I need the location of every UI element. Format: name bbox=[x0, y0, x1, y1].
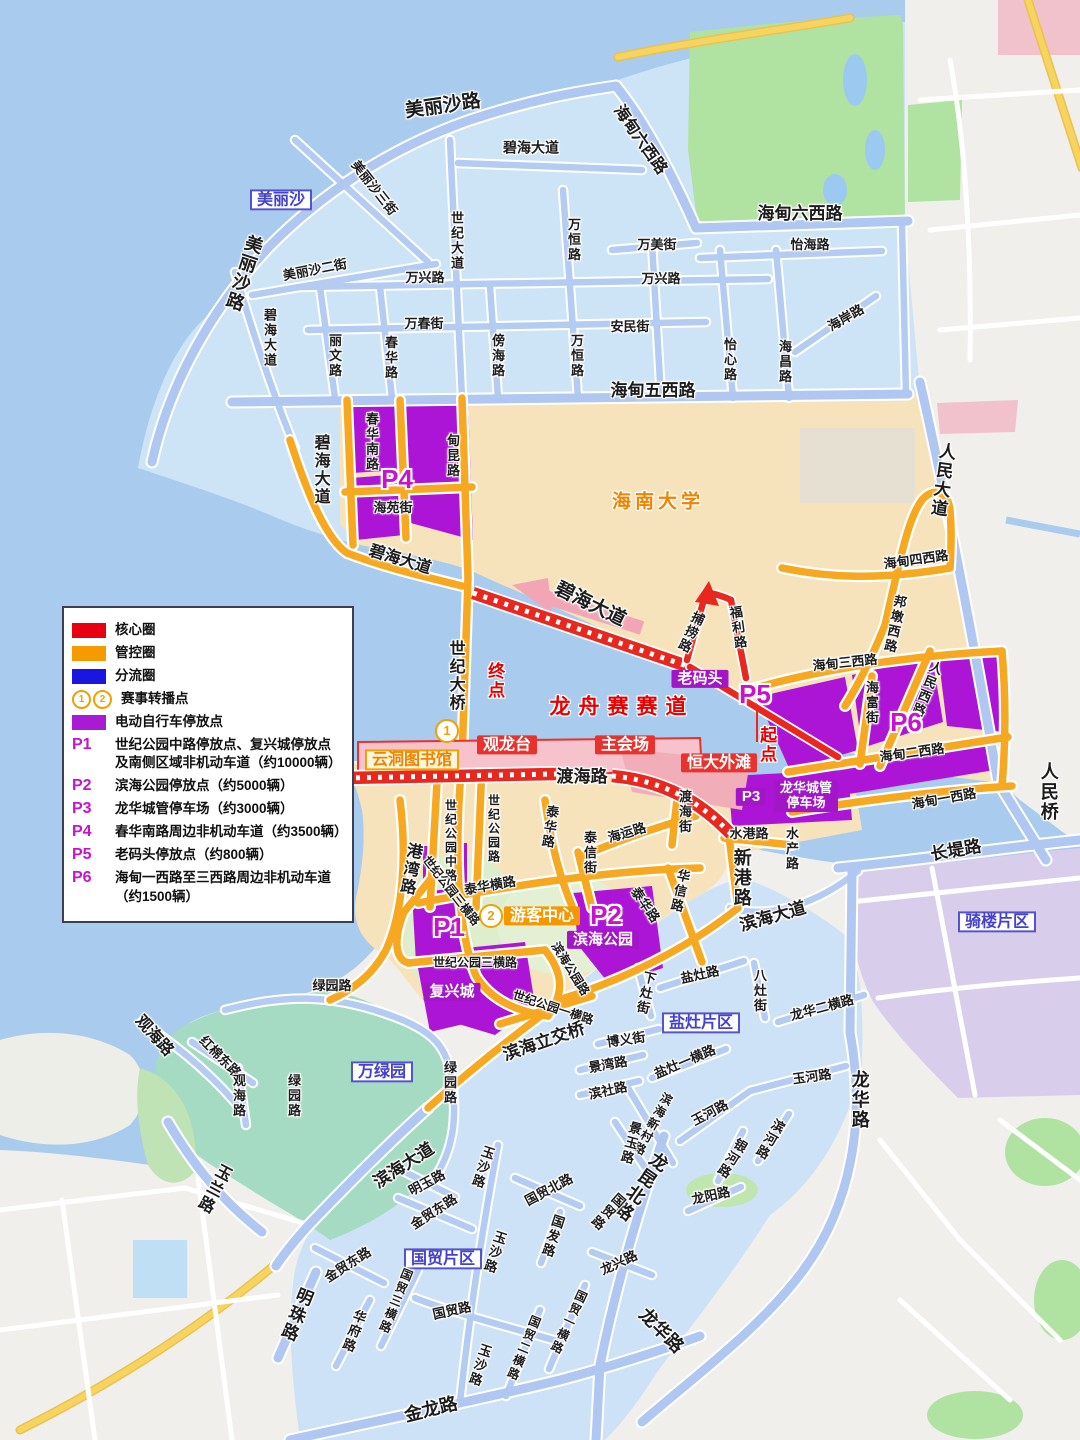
legend-broadcast-icons: 12 bbox=[72, 690, 112, 709]
legend-item: 分流圈 bbox=[72, 667, 344, 686]
road-label-major: 龙华路 bbox=[849, 1070, 868, 1130]
road-label: 万春街 bbox=[404, 317, 443, 331]
legend-parking-code: P5 bbox=[72, 846, 106, 864]
legend-parking-code: P3 bbox=[72, 800, 106, 818]
legend-parking-code: P2 bbox=[72, 777, 106, 795]
road-label: 怡心路 bbox=[722, 338, 736, 383]
road-label: 春华南路 bbox=[364, 412, 378, 472]
poi-label: 滨海公园 bbox=[567, 931, 639, 949]
legend-label: 电动自行车停放点 bbox=[115, 713, 223, 732]
map[interactable]: 核心圈管控圈分流圈12赛事转播点电动自行车停放点P1世纪公园中路停放点、复兴城停… bbox=[0, 0, 1080, 1440]
road-label: 世纪公园中路 bbox=[444, 799, 457, 883]
legend-label: 核心圈 bbox=[115, 621, 156, 640]
venue-label: 主会场 bbox=[595, 735, 655, 754]
road-label: 世纪公园三横路 bbox=[433, 957, 517, 970]
visitor-center-label: 游客中心 bbox=[504, 906, 580, 925]
legend: 核心圈管控圈分流圈12赛事转播点电动自行车停放点P1世纪公园中路停放点、复兴城停… bbox=[62, 606, 354, 923]
road-label: 绿园路 bbox=[312, 979, 351, 993]
road-label-major: 渡海路 bbox=[557, 768, 608, 786]
district-label: 美丽沙 bbox=[250, 189, 312, 210]
legend-item: 管控圈 bbox=[72, 644, 344, 663]
road-label: 碧海大道 bbox=[262, 308, 276, 368]
parking-marker-p5: P5 bbox=[739, 680, 771, 708]
course-point-label: 终点 bbox=[485, 662, 503, 700]
legend-parking-code: P6 bbox=[72, 869, 106, 887]
parking-marker-p2: P2 bbox=[590, 901, 622, 929]
district-label: 盐灶片区 bbox=[662, 1012, 740, 1033]
district-label: 骑楼片区 bbox=[958, 911, 1036, 932]
venue-label: 观龙台 bbox=[477, 735, 537, 754]
road-label: 万兴路 bbox=[405, 271, 444, 285]
road-label: 观海路 bbox=[231, 1074, 245, 1119]
legend-label: 世纪公园中路停放点、复兴城停放点及南侧区域非机动车道（约10000辆） bbox=[115, 736, 342, 774]
road-label-major: 世纪大桥 bbox=[446, 640, 463, 712]
legend-parking-code: P1 bbox=[72, 736, 106, 754]
road-label-major: 碧海大道 bbox=[311, 434, 328, 506]
parking-marker-p6: P6 bbox=[890, 708, 922, 736]
university-label: 海南大学 bbox=[612, 493, 704, 514]
legend-item: P5老码头停放点（约800辆） bbox=[72, 846, 344, 865]
road-label: 甸昆路 bbox=[445, 434, 459, 479]
legend-label: 管控圈 bbox=[115, 644, 156, 663]
legend-swatch bbox=[72, 646, 106, 661]
road-label: 万兴路 bbox=[641, 272, 680, 286]
district-label: 万绿园 bbox=[351, 1061, 413, 1082]
road-label: 渡海街 bbox=[677, 790, 691, 835]
legend-item: P3龙华城管停车场（约3000辆） bbox=[72, 800, 344, 819]
race-course-label: 龙舟赛赛道 bbox=[550, 697, 695, 720]
legend-label: 滨海公园停放点（约5000辆） bbox=[115, 777, 294, 796]
legend-item: P6海甸一西路至三西路周边非机动车道（约1500辆） bbox=[72, 869, 344, 907]
road-label: 水产路 bbox=[784, 827, 798, 872]
parking-marker-p4: P4 bbox=[381, 465, 413, 493]
road-label: 海富街 bbox=[864, 681, 878, 726]
parking-marker-p1: P1 bbox=[433, 913, 465, 941]
road-label-major: 海甸六西路 bbox=[758, 205, 843, 223]
road-label: 世纪大道 bbox=[449, 211, 463, 271]
legend-label: 赛事转播点 bbox=[121, 690, 189, 709]
road-label-major: 海甸五西路 bbox=[611, 382, 696, 400]
district-label: 国贸片区 bbox=[404, 1248, 482, 1269]
road-label: 绿园路 bbox=[286, 1074, 300, 1119]
road-label: 绿园路 bbox=[442, 1061, 456, 1106]
road-label-major: 新港路 bbox=[731, 848, 750, 908]
course-point-label: 起点 bbox=[757, 726, 775, 764]
road-label: 海昌路 bbox=[777, 340, 791, 385]
road-label-major: 人民桥 bbox=[1038, 762, 1057, 822]
legend-label: 海甸一西路至三西路周边非机动车道（约1500辆） bbox=[115, 869, 331, 907]
road-label: 泰信街 bbox=[582, 831, 596, 876]
legend-parking-code: P4 bbox=[72, 823, 106, 841]
road-label: 怡海路 bbox=[790, 238, 829, 252]
road-label: 水港路 bbox=[729, 827, 768, 841]
road-label: 安民街 bbox=[610, 320, 649, 334]
road-label: 碧海大道 bbox=[503, 140, 559, 155]
road-label: 海苑街 bbox=[373, 501, 412, 515]
road-label: 八灶街 bbox=[752, 969, 766, 1014]
legend-label: 老码头停放点（约800辆） bbox=[115, 846, 273, 865]
road-label: 万恒路 bbox=[566, 218, 580, 263]
legend-item: P2滨海公园停放点（约5000辆） bbox=[72, 777, 344, 796]
road-label: 傍海路 bbox=[490, 334, 504, 379]
venue-label: 恒大外滩 bbox=[681, 753, 757, 772]
legend-label: 春华南路周边非机动车道（约3500辆） bbox=[115, 823, 344, 842]
poi-label: 龙华城管停车场 bbox=[774, 780, 838, 812]
broadcast-point-marker: 1 bbox=[435, 719, 459, 743]
legend-item: P4春华南路周边非机动车道（约3500辆） bbox=[72, 823, 344, 842]
poi-label: 复兴城 bbox=[423, 983, 480, 1001]
legend-label: 分流圈 bbox=[115, 667, 156, 686]
road-label: 世纪公园路 bbox=[487, 794, 500, 864]
road-label: 春华路 bbox=[383, 336, 397, 381]
legend-swatch bbox=[72, 669, 106, 684]
legend-label: 龙华城管停车场（约3000辆） bbox=[115, 800, 294, 819]
legend-item: P1世纪公园中路停放点、复兴城停放点及南侧区域非机动车道（约10000辆） bbox=[72, 736, 344, 774]
legend-item: 电动自行车停放点 bbox=[72, 713, 344, 732]
poi-label: P3 bbox=[736, 788, 766, 806]
legend-item: 核心圈 bbox=[72, 621, 344, 640]
road-label: 丽文路 bbox=[327, 334, 341, 379]
poi-label: 老码头 bbox=[671, 670, 728, 688]
legend-swatch bbox=[72, 623, 106, 638]
library-label: 云洞图书馆 bbox=[365, 749, 459, 770]
road-label: 万美街 bbox=[637, 238, 676, 252]
road-label: 万恒路 bbox=[569, 334, 583, 379]
legend-swatch bbox=[72, 715, 106, 730]
broadcast-point-marker: 2 bbox=[479, 904, 503, 928]
legend-item: 12赛事转播点 bbox=[72, 690, 344, 709]
